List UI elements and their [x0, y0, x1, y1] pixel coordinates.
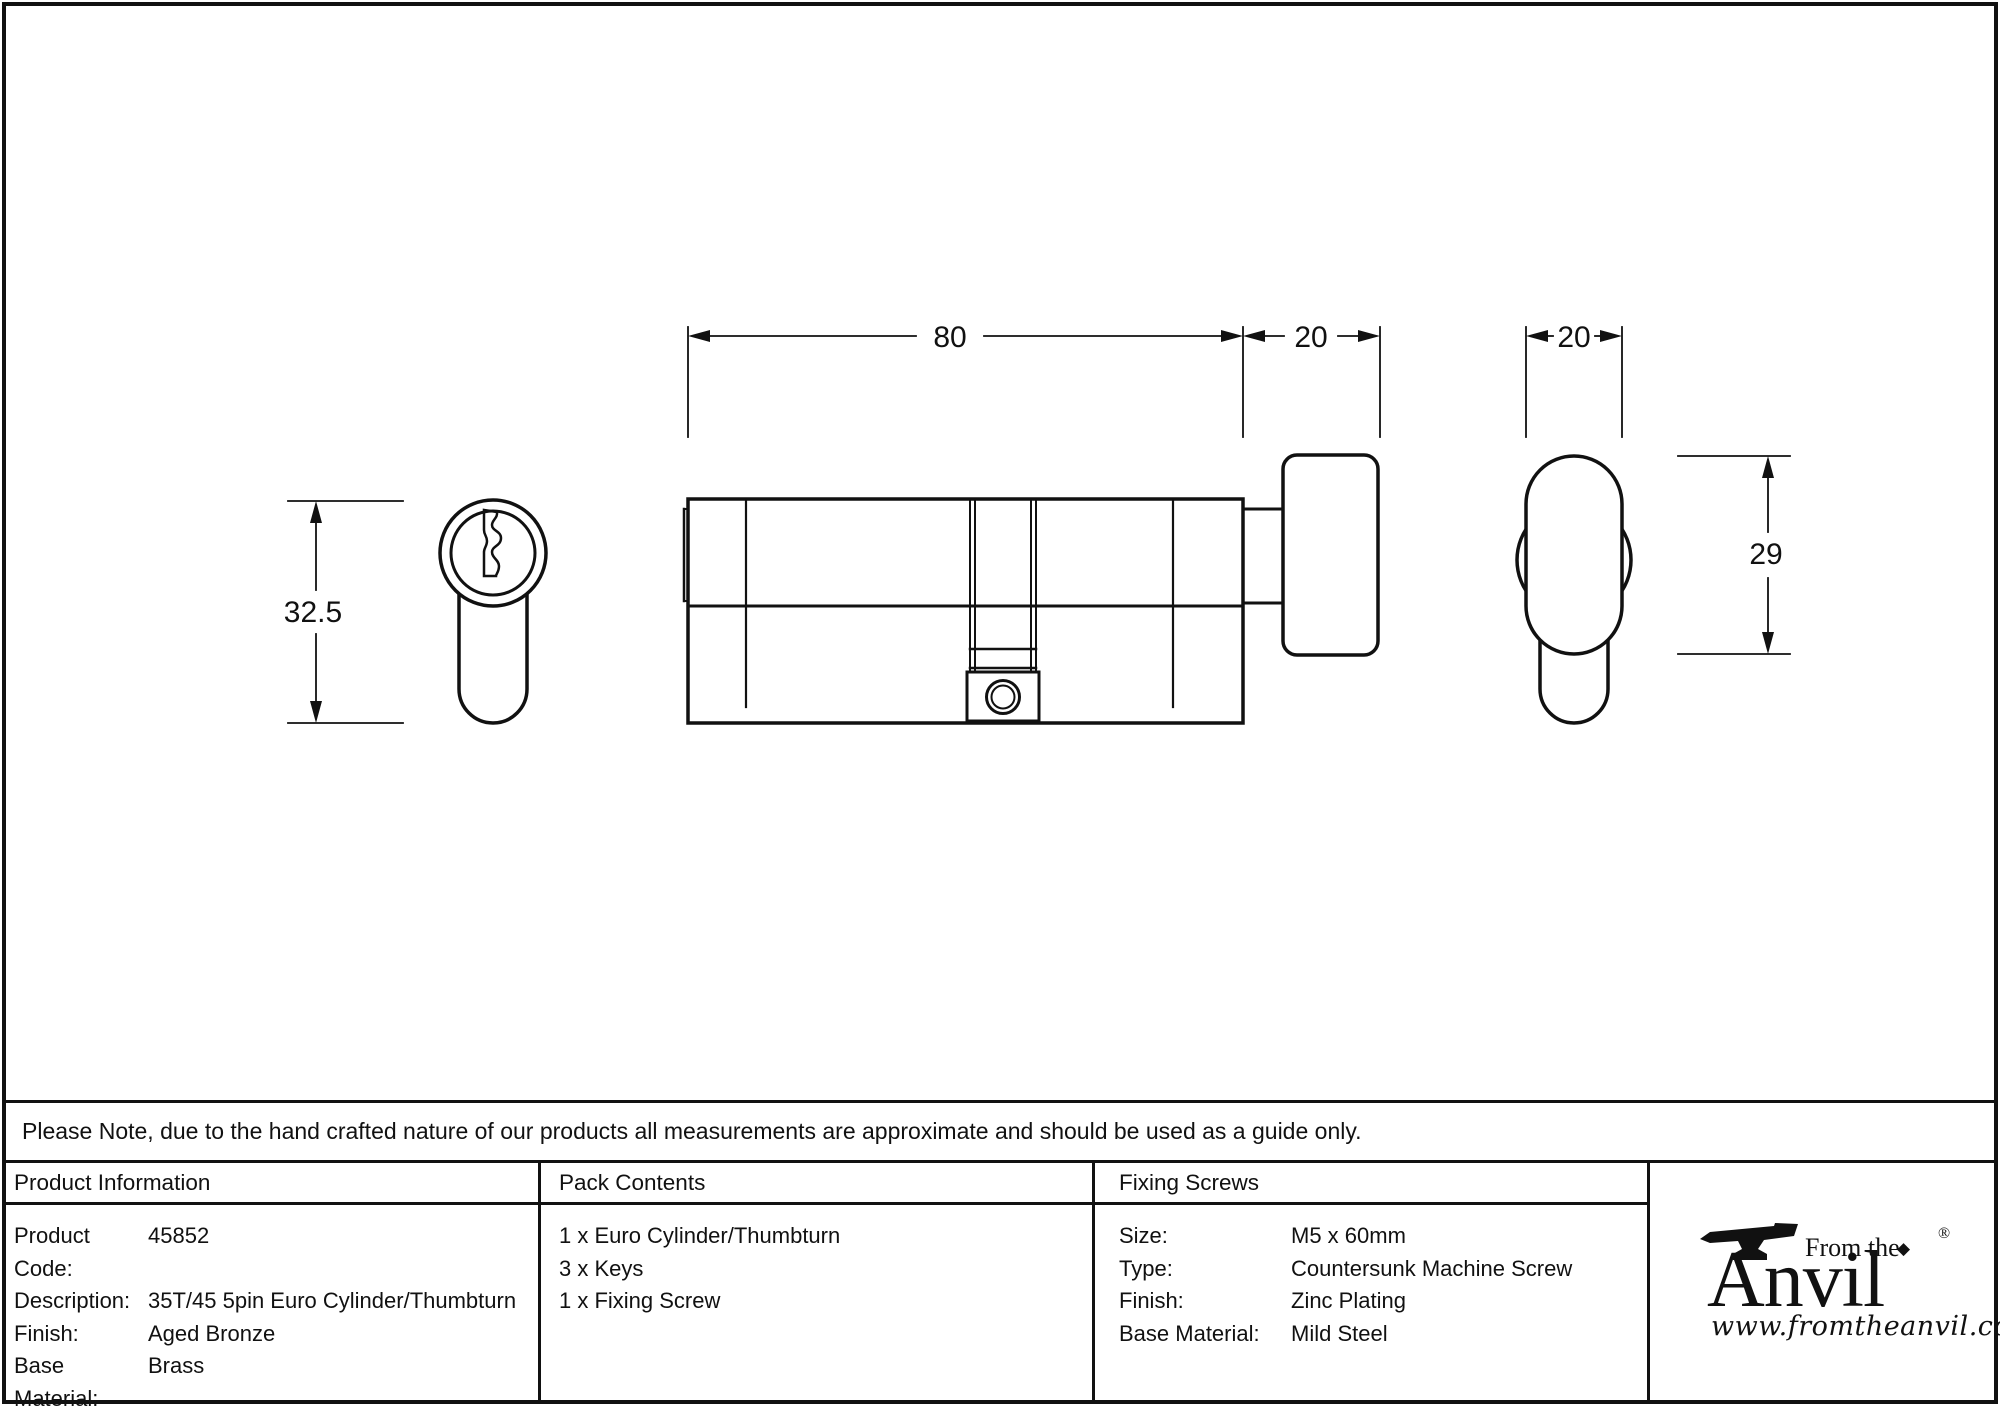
arrow-right-icon [1221, 330, 1243, 342]
field-label: Finish: [2, 1318, 148, 1351]
logo-tagline: From the [1805, 1233, 1900, 1263]
dim-label-total-length: 80 [933, 321, 966, 354]
field-label: Type: [1095, 1253, 1291, 1286]
product-information-header: Product Information [2, 1163, 538, 1205]
registered-mark: ® [1938, 1225, 1950, 1243]
field-label: Finish: [1095, 1285, 1291, 1318]
table-row: Base Material: Mild Steel [1095, 1318, 1647, 1351]
note-text: Please Note, due to the hand crafted nat… [22, 1118, 1362, 1145]
field-label: Product Code: [2, 1220, 148, 1285]
cylinder-side-view [684, 455, 1378, 723]
dim-label-thumbturn-depth: 20 [1294, 321, 1327, 354]
dim-label-thumbturn-width: 20 [1557, 321, 1590, 354]
cylinder-face-view [440, 500, 546, 723]
pack-item: 3 x Keys [541, 1253, 1092, 1286]
pack-item: 1 x Fixing Screw [541, 1285, 1092, 1318]
technical-drawing: 32.5 [0, 0, 2000, 1102]
table-row: Product Code: 45852 [2, 1220, 538, 1285]
arrow-up-icon [310, 501, 322, 523]
dim-label-thumbturn-height: 29 [1749, 538, 1782, 571]
table-row: Finish: Aged Bronze [2, 1318, 538, 1351]
logo-website: www.fromtheanvil.co.uk [1711, 1311, 2000, 1342]
field-label: Description: [2, 1285, 148, 1318]
measurement-note: Please Note, due to the hand crafted nat… [2, 1100, 1998, 1163]
product-spec-sheet: 32.5 [0, 0, 2000, 1406]
thumbturn-front-view [1517, 456, 1631, 723]
fixing-screws-cell: Fixing Screws Size: M5 x 60mm Type: Coun… [1092, 1163, 1647, 1404]
field-label: Base Material: [2, 1350, 148, 1406]
arrow-right-icon [1600, 330, 1622, 342]
arrow-left-icon [1526, 330, 1548, 342]
pack-contents-cell: Pack Contents 1 x Euro Cylinder/Thumbtur… [538, 1163, 1092, 1404]
pack-item: 1 x Euro Cylinder/Thumbturn [541, 1220, 1092, 1253]
field-value: Zinc Plating [1291, 1285, 1406, 1318]
field-value: Countersunk Machine Screw [1291, 1253, 1572, 1286]
field-value: Aged Bronze [148, 1318, 275, 1351]
table-row: Size: M5 x 60mm [1095, 1220, 1647, 1253]
product-information-cell: Product Information Product Code: 45852 … [2, 1163, 538, 1404]
pack-contents-header: Pack Contents [541, 1163, 1092, 1205]
thumbturn-knob-side [1283, 455, 1378, 655]
arrow-right-icon [1358, 330, 1380, 342]
field-value: 35T/45 5pin Euro Cylinder/Thumbturn [148, 1285, 516, 1318]
field-label: Base Material: [1095, 1318, 1291, 1351]
arrow-left-icon [1243, 330, 1265, 342]
arrow-down-icon [1762, 632, 1774, 654]
field-value: M5 x 60mm [1291, 1220, 1406, 1253]
thumbturn-knob-front [1526, 456, 1622, 654]
fixing-screws-header: Fixing Screws [1095, 1163, 1647, 1205]
arrow-down-icon [310, 701, 322, 723]
diamond-icon: ◆ [1897, 1239, 1910, 1259]
table-row: Finish: Zinc Plating [1095, 1285, 1647, 1318]
anvil-icon [1700, 1223, 1802, 1261]
dim-label-body-height: 32.5 [284, 596, 342, 629]
field-label: Size: [1095, 1220, 1291, 1253]
field-value: 45852 [148, 1220, 209, 1285]
arrow-left-icon [688, 330, 710, 342]
table-row: Base Material: Brass [2, 1350, 538, 1406]
table-row: Description: 35T/45 5pin Euro Cylinder/T… [2, 1285, 538, 1318]
field-value: Mild Steel [1291, 1318, 1388, 1351]
arrow-up-icon [1762, 456, 1774, 478]
cam-housing [970, 501, 1036, 672]
table-row: Type: Countersunk Machine Screw [1095, 1253, 1647, 1286]
from-the-anvil-logo: Anvil From the ◆ ® www.fromtheanvil.co.u… [1645, 1163, 1998, 1402]
field-value: Brass [148, 1350, 204, 1406]
